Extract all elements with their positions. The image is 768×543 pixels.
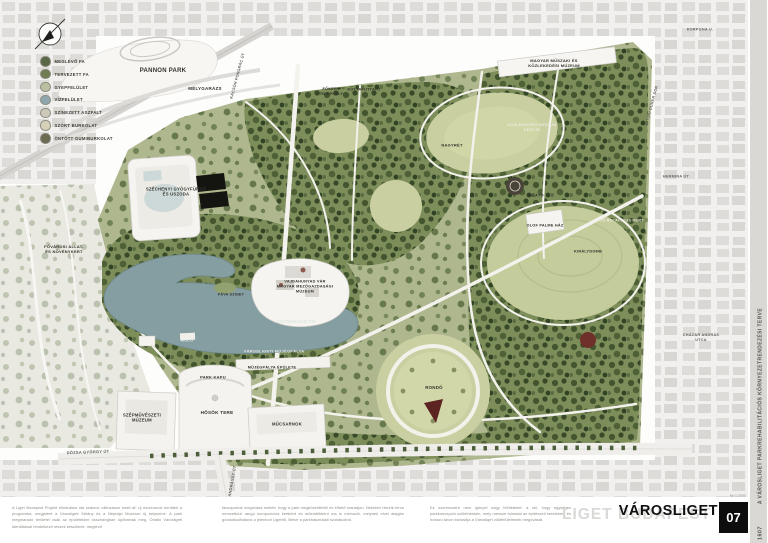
- legend-item: SZÓRT BURKOLAT: [40, 120, 113, 131]
- legend-item: VÍZFELÜLET: [40, 95, 113, 106]
- legend-label: TERVEZETT FA: [55, 72, 89, 77]
- szechenyi-bath: [127, 155, 201, 242]
- north-arrow-icon: [31, 15, 69, 53]
- legend-swatch-icon: [40, 95, 51, 106]
- peacock-island: [214, 283, 236, 294]
- red-feature: [580, 332, 596, 348]
- legend-label: SZÓRT BURKOLAT: [55, 123, 98, 128]
- project-code: 1607: [757, 526, 763, 540]
- side-title: 1607 A VÁROSLIGET PARKREHABILITÁCIÓS KÖR…: [754, 2, 767, 540]
- legend-swatch-icon: [40, 82, 51, 93]
- legend: MEGLÉVŐ FATERVEZETT FAGYEPFELÜLETVÍZFELÜ…: [40, 56, 113, 146]
- mucsarnok-hall: [248, 404, 326, 452]
- legend-label: VÍZFELÜLET: [55, 97, 83, 102]
- legend-item: ÖNTÖTT GUMIBURKOLAT: [40, 133, 113, 144]
- heroes-square: [179, 365, 253, 452]
- legend-swatch-icon: [40, 120, 51, 131]
- map-title: VÁROSLIGET: [520, 503, 718, 519]
- legend-swatch-icon: [40, 133, 51, 144]
- legend-item: GYEPFELÜLET: [40, 82, 113, 93]
- rondo-garden: [376, 334, 490, 448]
- fine-arts-museum: [116, 391, 176, 451]
- legend-item: TERVEZETT FA: [40, 69, 113, 80]
- footer-paragraph: A Liget Budapest Projekt elindulása óta …: [12, 505, 182, 530]
- masterplan-sheet: MEGLÉVŐ FATERVEZETT FAGYEPFELÜLETVÍZFELÜ…: [0, 0, 768, 543]
- legend-swatch-icon: [40, 69, 51, 80]
- park-map: [0, 0, 768, 543]
- legend-label: GYEPFELÜLET: [55, 85, 89, 90]
- legend-swatch-icon: [40, 108, 51, 119]
- sheet-number: 07: [726, 510, 740, 525]
- millennium-monument: [212, 395, 218, 401]
- pier: [180, 333, 195, 341]
- legend-swatch-icon: [40, 56, 51, 67]
- footer-paragraph: facsoportok megóvása mellett, hogy a par…: [222, 505, 404, 524]
- side-title-text: A VÁROSLIGET PARKREHABILITÁCIÓS KÖRNYEZE…: [757, 308, 763, 504]
- legend-label: SZÍNEZETT ASZFALT: [55, 110, 102, 115]
- legend-label: ÖNTÖTT GUMIBURKOLAT: [55, 136, 113, 141]
- lookout-mound: [506, 177, 524, 195]
- scale-label: M=1:2000: [690, 494, 746, 498]
- legend-item: MEGLÉVŐ FA: [40, 56, 113, 67]
- legend-item: SZÍNEZETT ASZFALT: [40, 108, 113, 119]
- legend-label: MEGLÉVŐ FA: [55, 59, 85, 64]
- vajdahunyad-castle: [251, 259, 349, 327]
- sheet-number-box: 07: [719, 502, 748, 533]
